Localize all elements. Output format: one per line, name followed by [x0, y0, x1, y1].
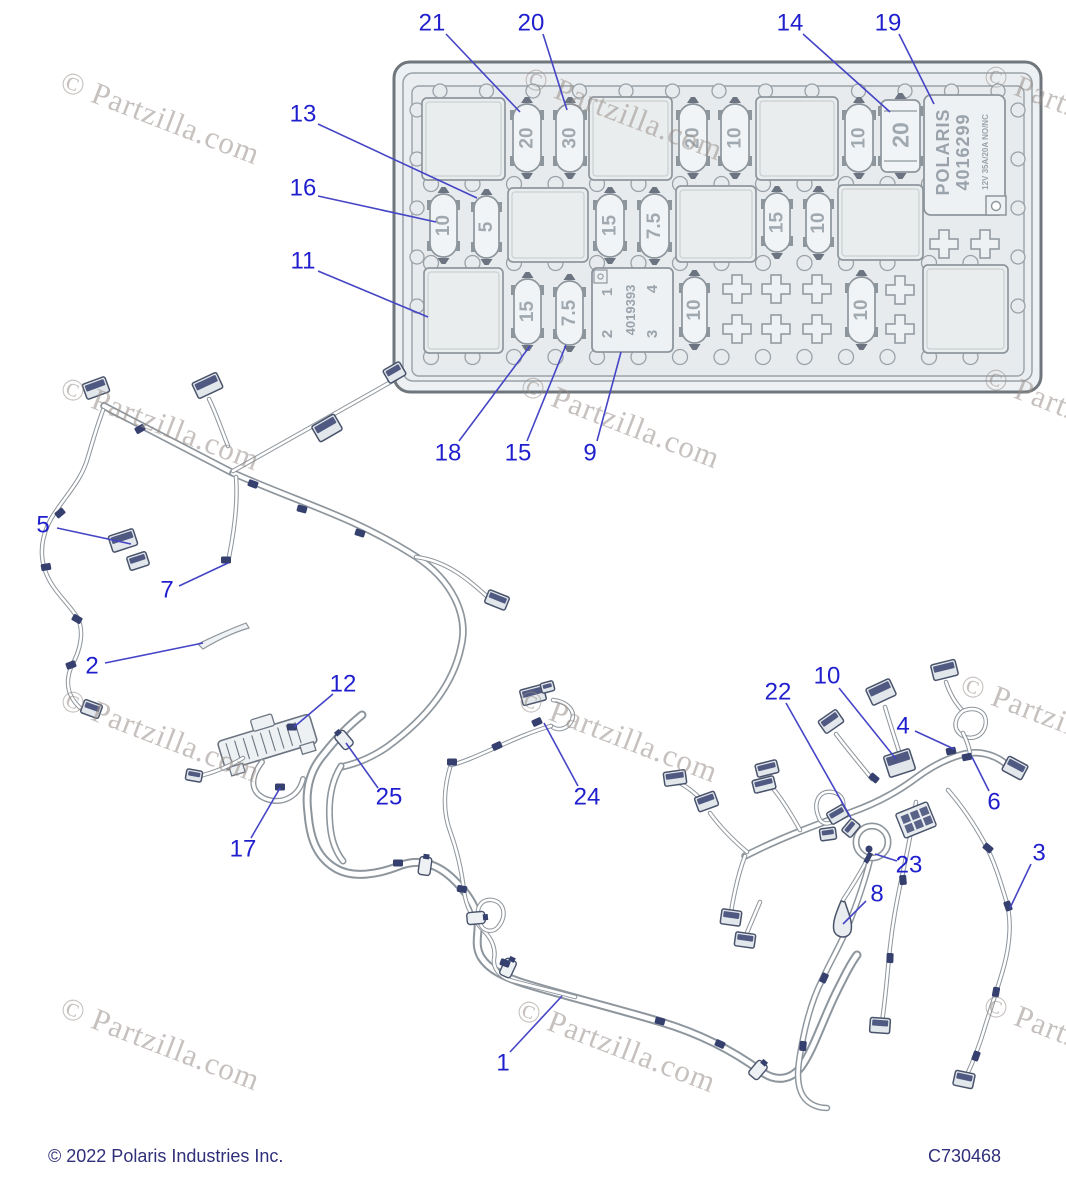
leader-line-11 — [318, 271, 428, 317]
callout-15: 15 — [505, 440, 532, 467]
leader-line-10 — [839, 688, 896, 759]
leader-line-6 — [972, 757, 989, 791]
leader-line-16 — [318, 196, 436, 222]
callout-layer: 2120141913161118159572122517242210462383… — [0, 0, 1066, 1200]
leader-line-17 — [251, 788, 280, 838]
leader-line-1 — [510, 996, 562, 1052]
callout-8: 8 — [870, 881, 883, 908]
callout-22: 22 — [765, 679, 792, 706]
callout-6: 6 — [987, 789, 1000, 816]
callout-20: 20 — [518, 10, 545, 37]
leader-line-18 — [459, 346, 530, 441]
leader-line-8 — [843, 901, 866, 924]
callout-17: 17 — [230, 836, 257, 863]
leader-line-13 — [318, 124, 477, 198]
leader-line-21 — [446, 34, 520, 112]
callout-9: 9 — [583, 440, 596, 467]
callout-18: 18 — [435, 440, 462, 467]
callout-11: 11 — [291, 248, 316, 275]
callout-14: 14 — [777, 10, 804, 37]
callout-13: 13 — [290, 101, 317, 128]
callout-21: 21 — [419, 10, 446, 37]
leader-line-9 — [597, 352, 621, 441]
callout-19: 19 — [875, 10, 902, 37]
callout-2: 2 — [85, 653, 98, 680]
leader-line-14 — [803, 34, 890, 112]
callout-12: 12 — [330, 671, 357, 698]
callout-4: 4 — [896, 713, 909, 740]
copyright-text: © 2022 Polaris Industries Inc. — [48, 1146, 283, 1167]
callout-3: 3 — [1032, 840, 1045, 867]
leader-line-7 — [179, 563, 228, 586]
leader-line-19 — [899, 34, 934, 104]
callout-1: 1 — [496, 1050, 509, 1077]
leader-line-25 — [346, 743, 378, 788]
callout-16: 16 — [290, 175, 317, 202]
leader-line-15 — [527, 345, 566, 441]
leader-line-12 — [294, 694, 333, 727]
leader-line-20 — [543, 34, 567, 110]
callout-23: 23 — [896, 852, 923, 879]
leader-line-3 — [1010, 864, 1031, 908]
leader-line-22 — [786, 703, 851, 818]
callout-10: 10 — [814, 663, 841, 690]
document-code: C730468 — [928, 1146, 1001, 1167]
parts-diagram-page: 2030201010105157.51510157.5101020 POLARI… — [0, 0, 1066, 1200]
callout-5: 5 — [36, 512, 49, 539]
leader-line-23 — [875, 854, 897, 861]
leader-line-4 — [915, 731, 954, 749]
leader-line-5 — [57, 528, 131, 544]
callout-7: 7 — [160, 577, 173, 604]
callout-25: 25 — [376, 784, 403, 811]
callout-24: 24 — [574, 784, 601, 811]
leader-line-24 — [544, 723, 578, 786]
leader-line-2 — [105, 643, 203, 663]
